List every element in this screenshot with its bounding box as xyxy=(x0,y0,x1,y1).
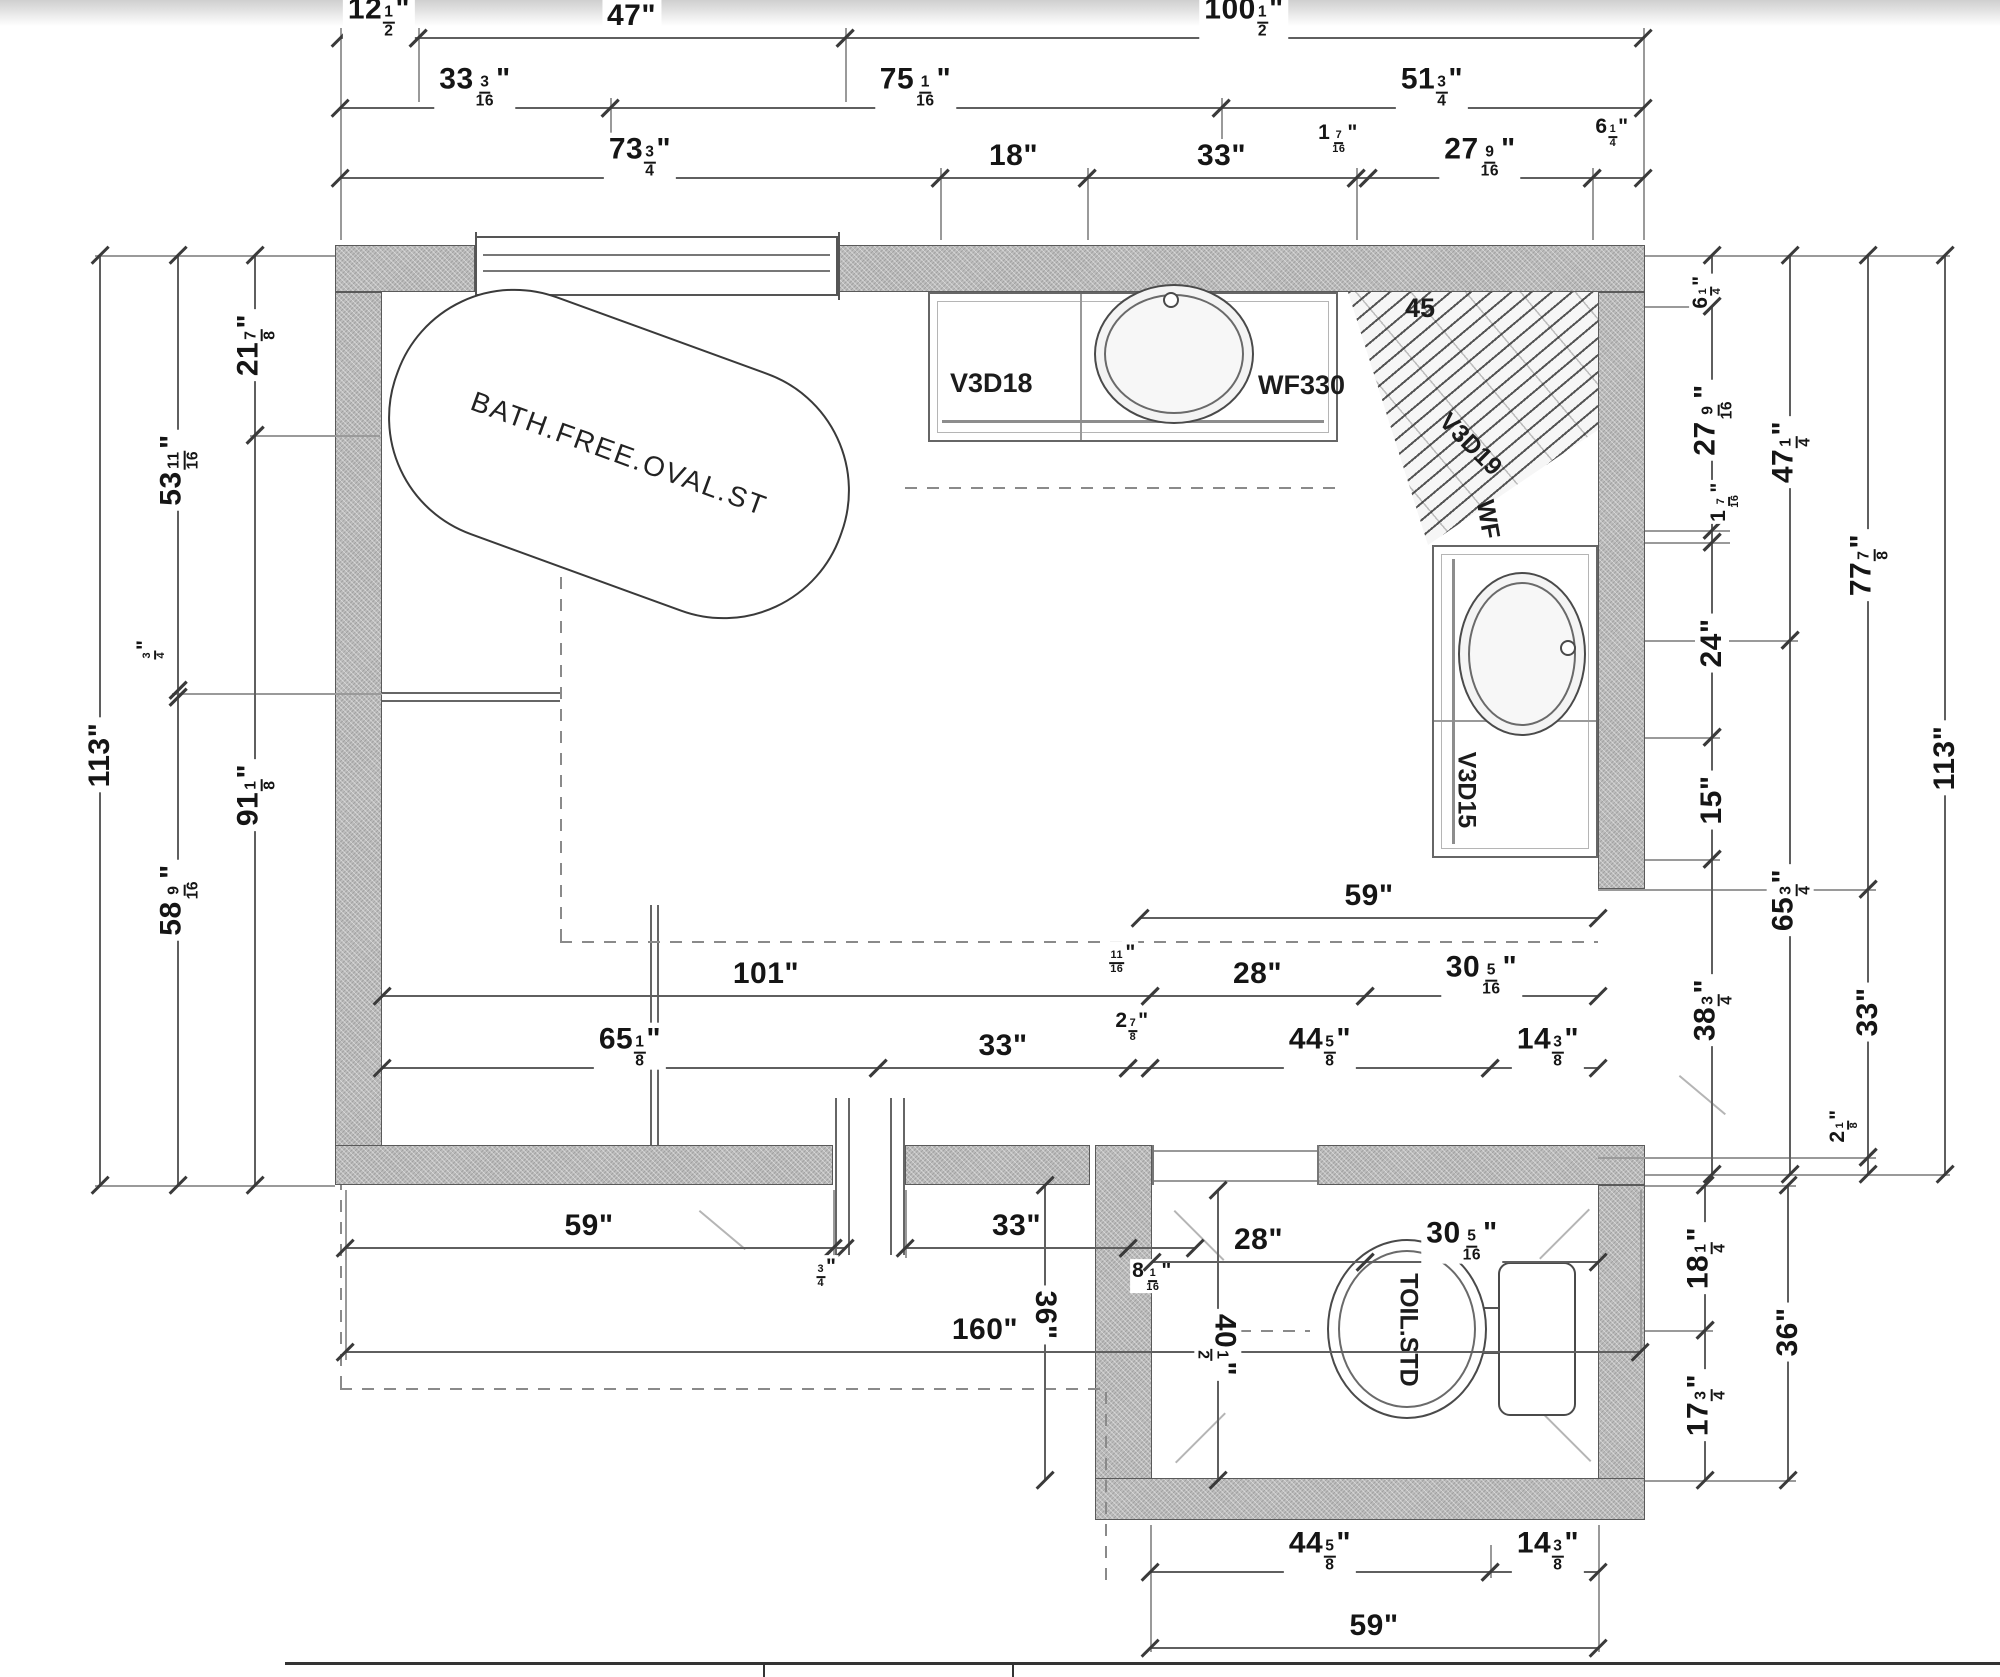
dim-label: 4012" xyxy=(1195,1309,1242,1381)
dim-label: 15" xyxy=(1695,770,1729,829)
dim-line xyxy=(940,177,1087,179)
dim-label: 36" xyxy=(1771,1302,1805,1361)
dim-label: 75116" xyxy=(875,63,956,110)
dim-label: 28" xyxy=(1228,957,1287,991)
dimension-layer: 1212"47"10012"33316"75116"5134"7334"18"3… xyxy=(0,0,2000,1677)
dim-label: 6534" xyxy=(1767,864,1814,936)
dim-label: 58916" xyxy=(155,859,202,940)
dim-line xyxy=(878,1067,1128,1069)
dim-line xyxy=(382,995,1150,997)
dim-label: 1438" xyxy=(1512,1527,1584,1574)
dim-label: 47" xyxy=(602,0,661,33)
dim-label: 59" xyxy=(1344,1609,1403,1643)
dim-label: 1814" xyxy=(1682,1222,1729,1294)
dim-label: 36" xyxy=(1028,1285,1062,1344)
dim-label: 2178" xyxy=(232,309,279,381)
dim-label: 33" xyxy=(1192,139,1251,173)
dim-line xyxy=(1592,177,1643,179)
dim-label: 59" xyxy=(1339,879,1398,913)
dim-label: 24" xyxy=(1695,613,1729,672)
dim-line xyxy=(905,1247,1128,1249)
dim-label: 614" xyxy=(1689,273,1723,310)
dim-label: 531116" xyxy=(155,429,202,510)
dim-line xyxy=(1944,255,1946,1174)
dim-label: 278" xyxy=(1113,1009,1150,1043)
dim-label: 33" xyxy=(1851,982,1885,1041)
dim-line xyxy=(1128,1247,1195,1249)
dim-label: 4714" xyxy=(1767,416,1814,488)
dim-line xyxy=(177,697,179,1185)
dim-label: 7778" xyxy=(1845,529,1892,601)
dim-label: 5134" xyxy=(1396,63,1468,110)
dim-label: 1716" xyxy=(1316,121,1360,155)
dim-line xyxy=(1150,1647,1598,1649)
dim-line xyxy=(1150,995,1365,997)
floorplan-canvas: BATH.FREE.OVAL.ST V3D18 WF330 45 V3D19 W… xyxy=(0,0,2000,1677)
dim-label: 101" xyxy=(728,957,804,991)
dim-label: 1116" xyxy=(1106,941,1138,975)
dim-label: 8116" xyxy=(1130,1259,1174,1293)
dim-label: 33" xyxy=(973,1029,1032,1063)
dim-label: 33316" xyxy=(434,63,515,110)
dim-line xyxy=(345,1247,833,1249)
dim-label: 59" xyxy=(559,1209,618,1243)
dim-label: 218" xyxy=(1826,1107,1860,1144)
dim-line xyxy=(1087,177,1356,179)
dim-line xyxy=(418,37,845,39)
dim-label: 3834" xyxy=(1689,974,1736,1046)
dim-label: 614" xyxy=(1593,115,1630,149)
dim-label: 4458" xyxy=(1284,1527,1356,1574)
dim-label: 33" xyxy=(987,1209,1046,1243)
dim-label: 28" xyxy=(1229,1223,1288,1257)
dim-label: 1212" xyxy=(343,0,415,39)
dim-label: 34" xyxy=(813,1255,838,1289)
dim-label: 34" xyxy=(133,637,167,662)
dim-label: 6518" xyxy=(594,1023,666,1070)
dim-line xyxy=(1140,917,1598,919)
dim-label: 4458" xyxy=(1284,1023,1356,1070)
dim-line xyxy=(1152,1261,1365,1263)
dim-label: 113" xyxy=(83,718,117,793)
dim-label: 1734" xyxy=(1682,1369,1729,1441)
dim-label: 1716" xyxy=(1707,480,1741,524)
dim-label: 7334" xyxy=(604,133,676,180)
dim-label: 27916" xyxy=(1439,133,1520,180)
dim-label: 9118" xyxy=(232,759,279,831)
dim-label: 27916" xyxy=(1689,379,1736,460)
dim-label: 30516" xyxy=(1441,951,1522,998)
dim-label: 1438" xyxy=(1512,1023,1584,1070)
dim-label: 30516" xyxy=(1421,1217,1502,1264)
dim-label: 18" xyxy=(984,139,1043,173)
dim-label: 113" xyxy=(1928,721,1962,796)
dim-line xyxy=(345,1351,1640,1353)
dim-label: 160" xyxy=(947,1313,1023,1347)
dim-label: 10012" xyxy=(1199,0,1288,39)
